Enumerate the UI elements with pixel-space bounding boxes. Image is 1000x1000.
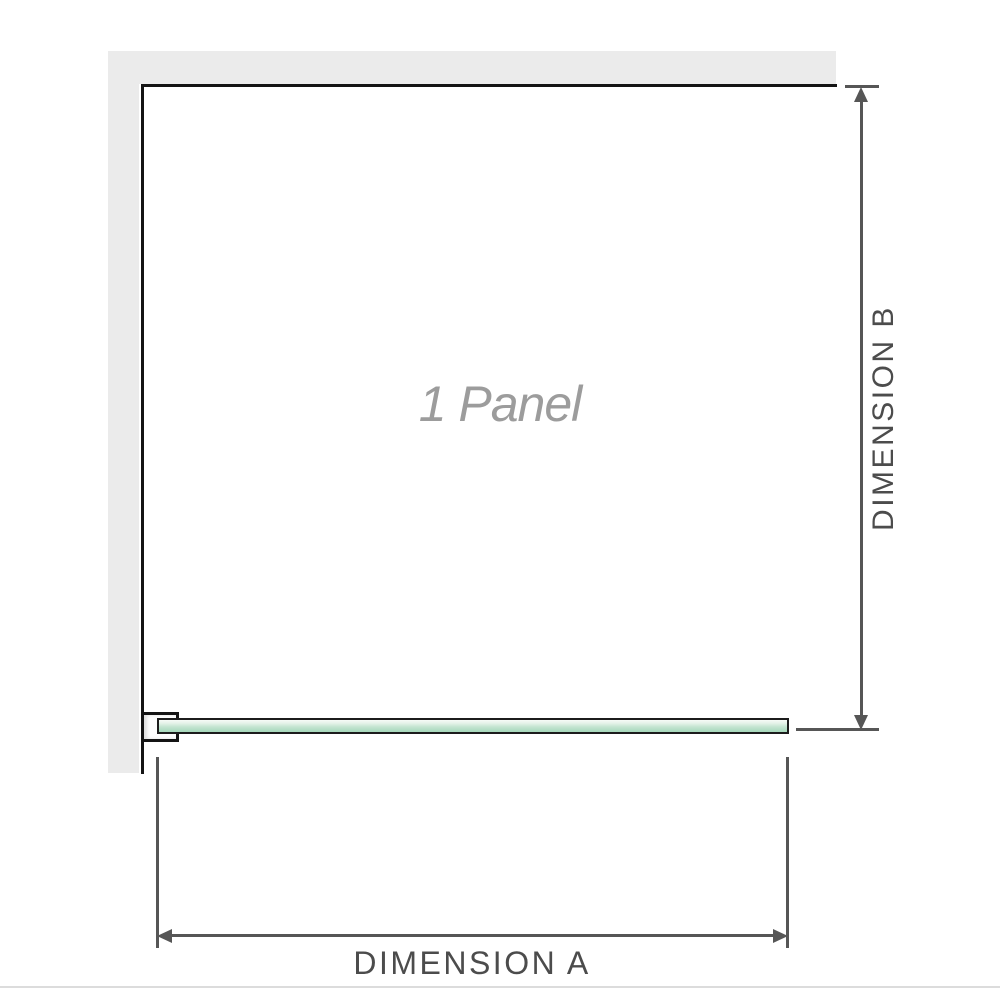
glass-panel-bar	[157, 718, 789, 734]
arrow-right-icon	[773, 929, 788, 943]
dimension-a-label: DIMENSION A	[272, 944, 672, 982]
enclosure-top-edge	[141, 84, 837, 87]
arrow-left-icon	[157, 929, 172, 943]
enclosure-left-edge	[141, 84, 144, 774]
wall-top-segment	[108, 51, 836, 84]
dimension-a-line	[171, 934, 775, 937]
shower-panel-diagram: 1 Panel DIMENSION B DIMENSION A	[0, 0, 1000, 1000]
dimension-b-line	[860, 101, 863, 716]
panel-count-label: 1 Panel	[330, 376, 670, 436]
arrow-down-icon	[854, 715, 868, 730]
arrow-up-icon	[854, 87, 868, 102]
wall-left-segment	[108, 51, 139, 773]
bottom-divider	[0, 986, 1000, 988]
dimension-b-label: DIMENSION B	[866, 218, 902, 618]
dimension-a-right-tick	[786, 757, 789, 948]
dimension-a-left-tick	[156, 757, 159, 948]
